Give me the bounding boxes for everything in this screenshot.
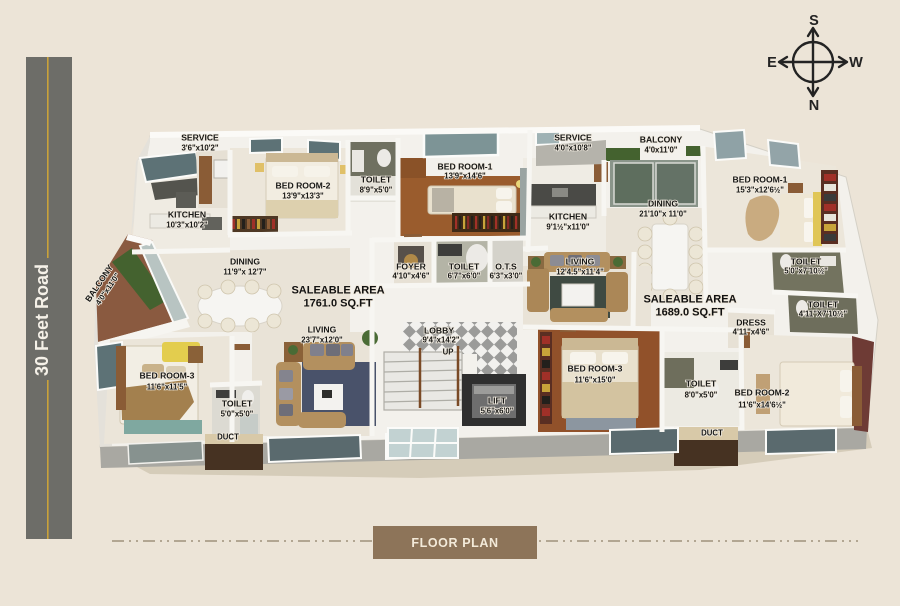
svg-text:KITCHEN: KITCHEN — [549, 212, 587, 222]
svg-text:S: S — [809, 13, 819, 29]
svg-text:LOBBY: LOBBY — [424, 326, 454, 336]
svg-text:9'4"x14'2": 9'4"x14'2" — [422, 336, 459, 345]
svg-text:KITCHEN: KITCHEN — [168, 210, 206, 220]
svg-text:5'6"x6'0": 5'6"x6'0" — [481, 407, 514, 416]
svg-text:1689.0 SQ.FT: 1689.0 SQ.FT — [655, 307, 724, 319]
svg-text:BED ROOM-3: BED ROOM-3 — [140, 371, 195, 381]
svg-text:3'6"x10'2": 3'6"x10'2" — [181, 144, 218, 153]
svg-text:BALCONY: BALCONY — [640, 135, 683, 145]
svg-text:23'7"x12'0": 23'7"x12'0" — [301, 336, 343, 345]
svg-text:BED ROOM-1: BED ROOM-1 — [438, 162, 493, 172]
svg-text:O.T.S: O.T.S — [495, 262, 517, 272]
svg-text:DRESS: DRESS — [736, 318, 766, 328]
svg-text:TOILET: TOILET — [791, 257, 822, 267]
svg-text:TOILET: TOILET — [808, 300, 839, 310]
svg-text:LIVING: LIVING — [566, 257, 595, 267]
svg-text:6'3"x3'0": 6'3"x3'0" — [490, 272, 523, 281]
svg-text:11'6"x14'6½": 11'6"x14'6½" — [738, 401, 786, 410]
svg-text:8'0"x5'0": 8'0"x5'0" — [685, 391, 718, 400]
svg-text:8'9"x5'0": 8'9"x5'0" — [360, 186, 393, 195]
svg-text:UP: UP — [443, 348, 454, 357]
svg-text:30 Feet Road: 30 Feet Road — [32, 264, 52, 376]
svg-text:TOILET: TOILET — [222, 399, 253, 409]
svg-text:5'0"x5'0": 5'0"x5'0" — [221, 410, 254, 419]
svg-text:SERVICE: SERVICE — [181, 133, 219, 143]
svg-text:BED ROOM-2: BED ROOM-2 — [735, 388, 790, 398]
svg-text:4'11"X7'10½": 4'11"X7'10½" — [799, 310, 848, 319]
svg-text:BED ROOM-2: BED ROOM-2 — [276, 181, 331, 191]
svg-text:1761.0 SQ.FT: 1761.0 SQ.FT — [303, 298, 372, 310]
svg-text:TOILET: TOILET — [686, 379, 717, 389]
svg-text:21'10"x 11'0": 21'10"x 11'0" — [639, 210, 687, 219]
svg-text:TOILET: TOILET — [449, 262, 480, 272]
svg-text:9'1½"x11'0": 9'1½"x11'0" — [546, 223, 589, 232]
svg-text:BED ROOM-1: BED ROOM-1 — [733, 175, 788, 185]
svg-text:13'9"x14'6": 13'9"x14'6" — [444, 172, 486, 181]
svg-text:DINING: DINING — [648, 199, 678, 209]
svg-text:5'0"x7'10½": 5'0"x7'10½" — [784, 267, 828, 276]
svg-text:W: W — [849, 55, 863, 71]
svg-text:4'0x11'0": 4'0x11'0" — [645, 146, 678, 155]
svg-text:11'6"x15'0": 11'6"x15'0" — [574, 376, 615, 385]
svg-text:DINING: DINING — [230, 257, 260, 267]
svg-text:4'11"x4'6": 4'11"x4'6" — [733, 328, 770, 337]
svg-text:15'3"x12'6½": 15'3"x12'6½" — [736, 186, 784, 195]
svg-text:N: N — [809, 98, 819, 114]
svg-text:LIVING: LIVING — [308, 325, 337, 335]
svg-text:SALEABLE AREA: SALEABLE AREA — [291, 285, 384, 297]
svg-text:DUCT: DUCT — [217, 433, 239, 442]
svg-text:13'9"x13'3": 13'9"x13'3" — [282, 192, 324, 201]
svg-text:LIFT: LIFT — [488, 396, 507, 406]
svg-text:4'10"x4'6": 4'10"x4'6" — [392, 272, 429, 281]
svg-text:TOILET: TOILET — [361, 175, 392, 185]
svg-text:11'9"x 12'7": 11'9"x 12'7" — [223, 268, 266, 277]
svg-text:4'0"x10'8": 4'0"x10'8" — [554, 144, 591, 153]
svg-text:6'7"x6'0": 6'7"x6'0" — [448, 272, 481, 281]
svg-text:FOYER: FOYER — [396, 262, 426, 272]
svg-text:12'4.5"x11'4": 12'4.5"x11'4" — [556, 268, 604, 277]
svg-text:FLOOR PLAN: FLOOR PLAN — [411, 536, 498, 550]
svg-text:10'3"x10'2": 10'3"x10'2" — [166, 221, 208, 230]
svg-text:SALEABLE AREA: SALEABLE AREA — [643, 294, 736, 306]
svg-text:SERVICE: SERVICE — [554, 133, 592, 143]
svg-text:DUCT: DUCT — [701, 429, 723, 438]
svg-text:BED ROOM-3: BED ROOM-3 — [568, 364, 623, 374]
svg-text:E: E — [767, 55, 777, 71]
svg-text:11'6"x11'5": 11'6"x11'5" — [147, 383, 188, 392]
